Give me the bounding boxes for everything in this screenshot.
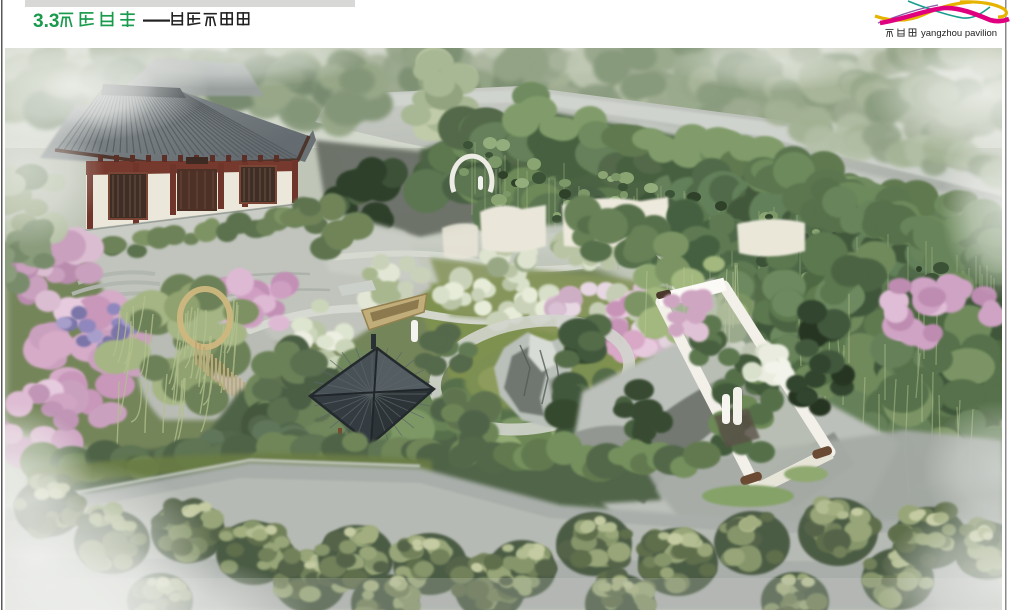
- svg-text:3.3: 3.3: [33, 11, 59, 32]
- svg-text:yangzhou pavilion: yangzhou pavilion: [921, 28, 997, 39]
